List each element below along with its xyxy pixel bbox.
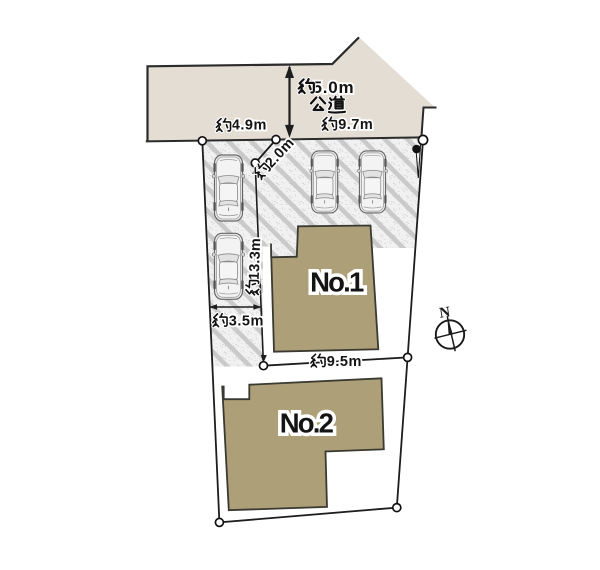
svg-text:9.7m: 9.7m [338, 117, 373, 133]
svg-text:3.5m: 3.5m [229, 314, 264, 330]
svg-text:9.5m: 9.5m [327, 354, 362, 370]
svg-text:13.3m: 13.3m [247, 238, 265, 281]
svg-text:4.9m: 4.9m [232, 118, 267, 134]
svg-text:No.1: No.1 [310, 266, 364, 297]
svg-text:5.0m: 5.0m [313, 78, 355, 97]
svg-text:No.2: No.2 [280, 408, 334, 439]
